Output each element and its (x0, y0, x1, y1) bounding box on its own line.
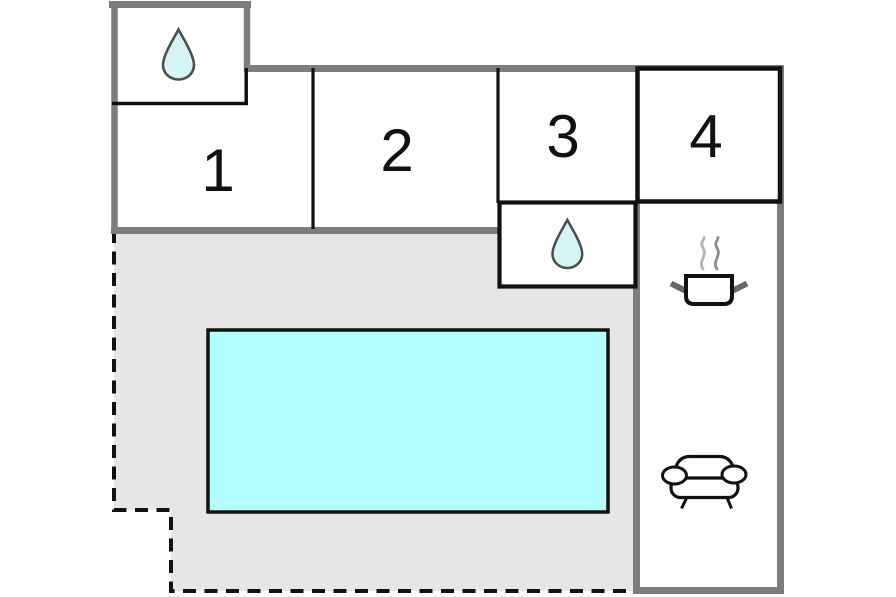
cooking-pot-icon (671, 238, 747, 305)
floor-plan: 1 2 3 4 (0, 0, 896, 597)
steam-line-right (715, 238, 718, 270)
sofa-armrest-left (663, 467, 687, 484)
pot-body (686, 276, 732, 304)
room-2-label: 2 (380, 117, 413, 184)
sofa-armrest-right (722, 466, 746, 483)
steam-line-left (701, 238, 704, 270)
room-3-label: 3 (546, 103, 579, 170)
room-4-label: 4 (689, 103, 722, 170)
floor-plan-page: 1 2 3 4 (0, 0, 896, 597)
sofa-icon (663, 457, 747, 509)
swimming-pool (208, 330, 608, 512)
water-drop-icon (163, 30, 194, 80)
water-drop-shape (163, 30, 194, 80)
room-1-label: 1 (201, 137, 234, 204)
